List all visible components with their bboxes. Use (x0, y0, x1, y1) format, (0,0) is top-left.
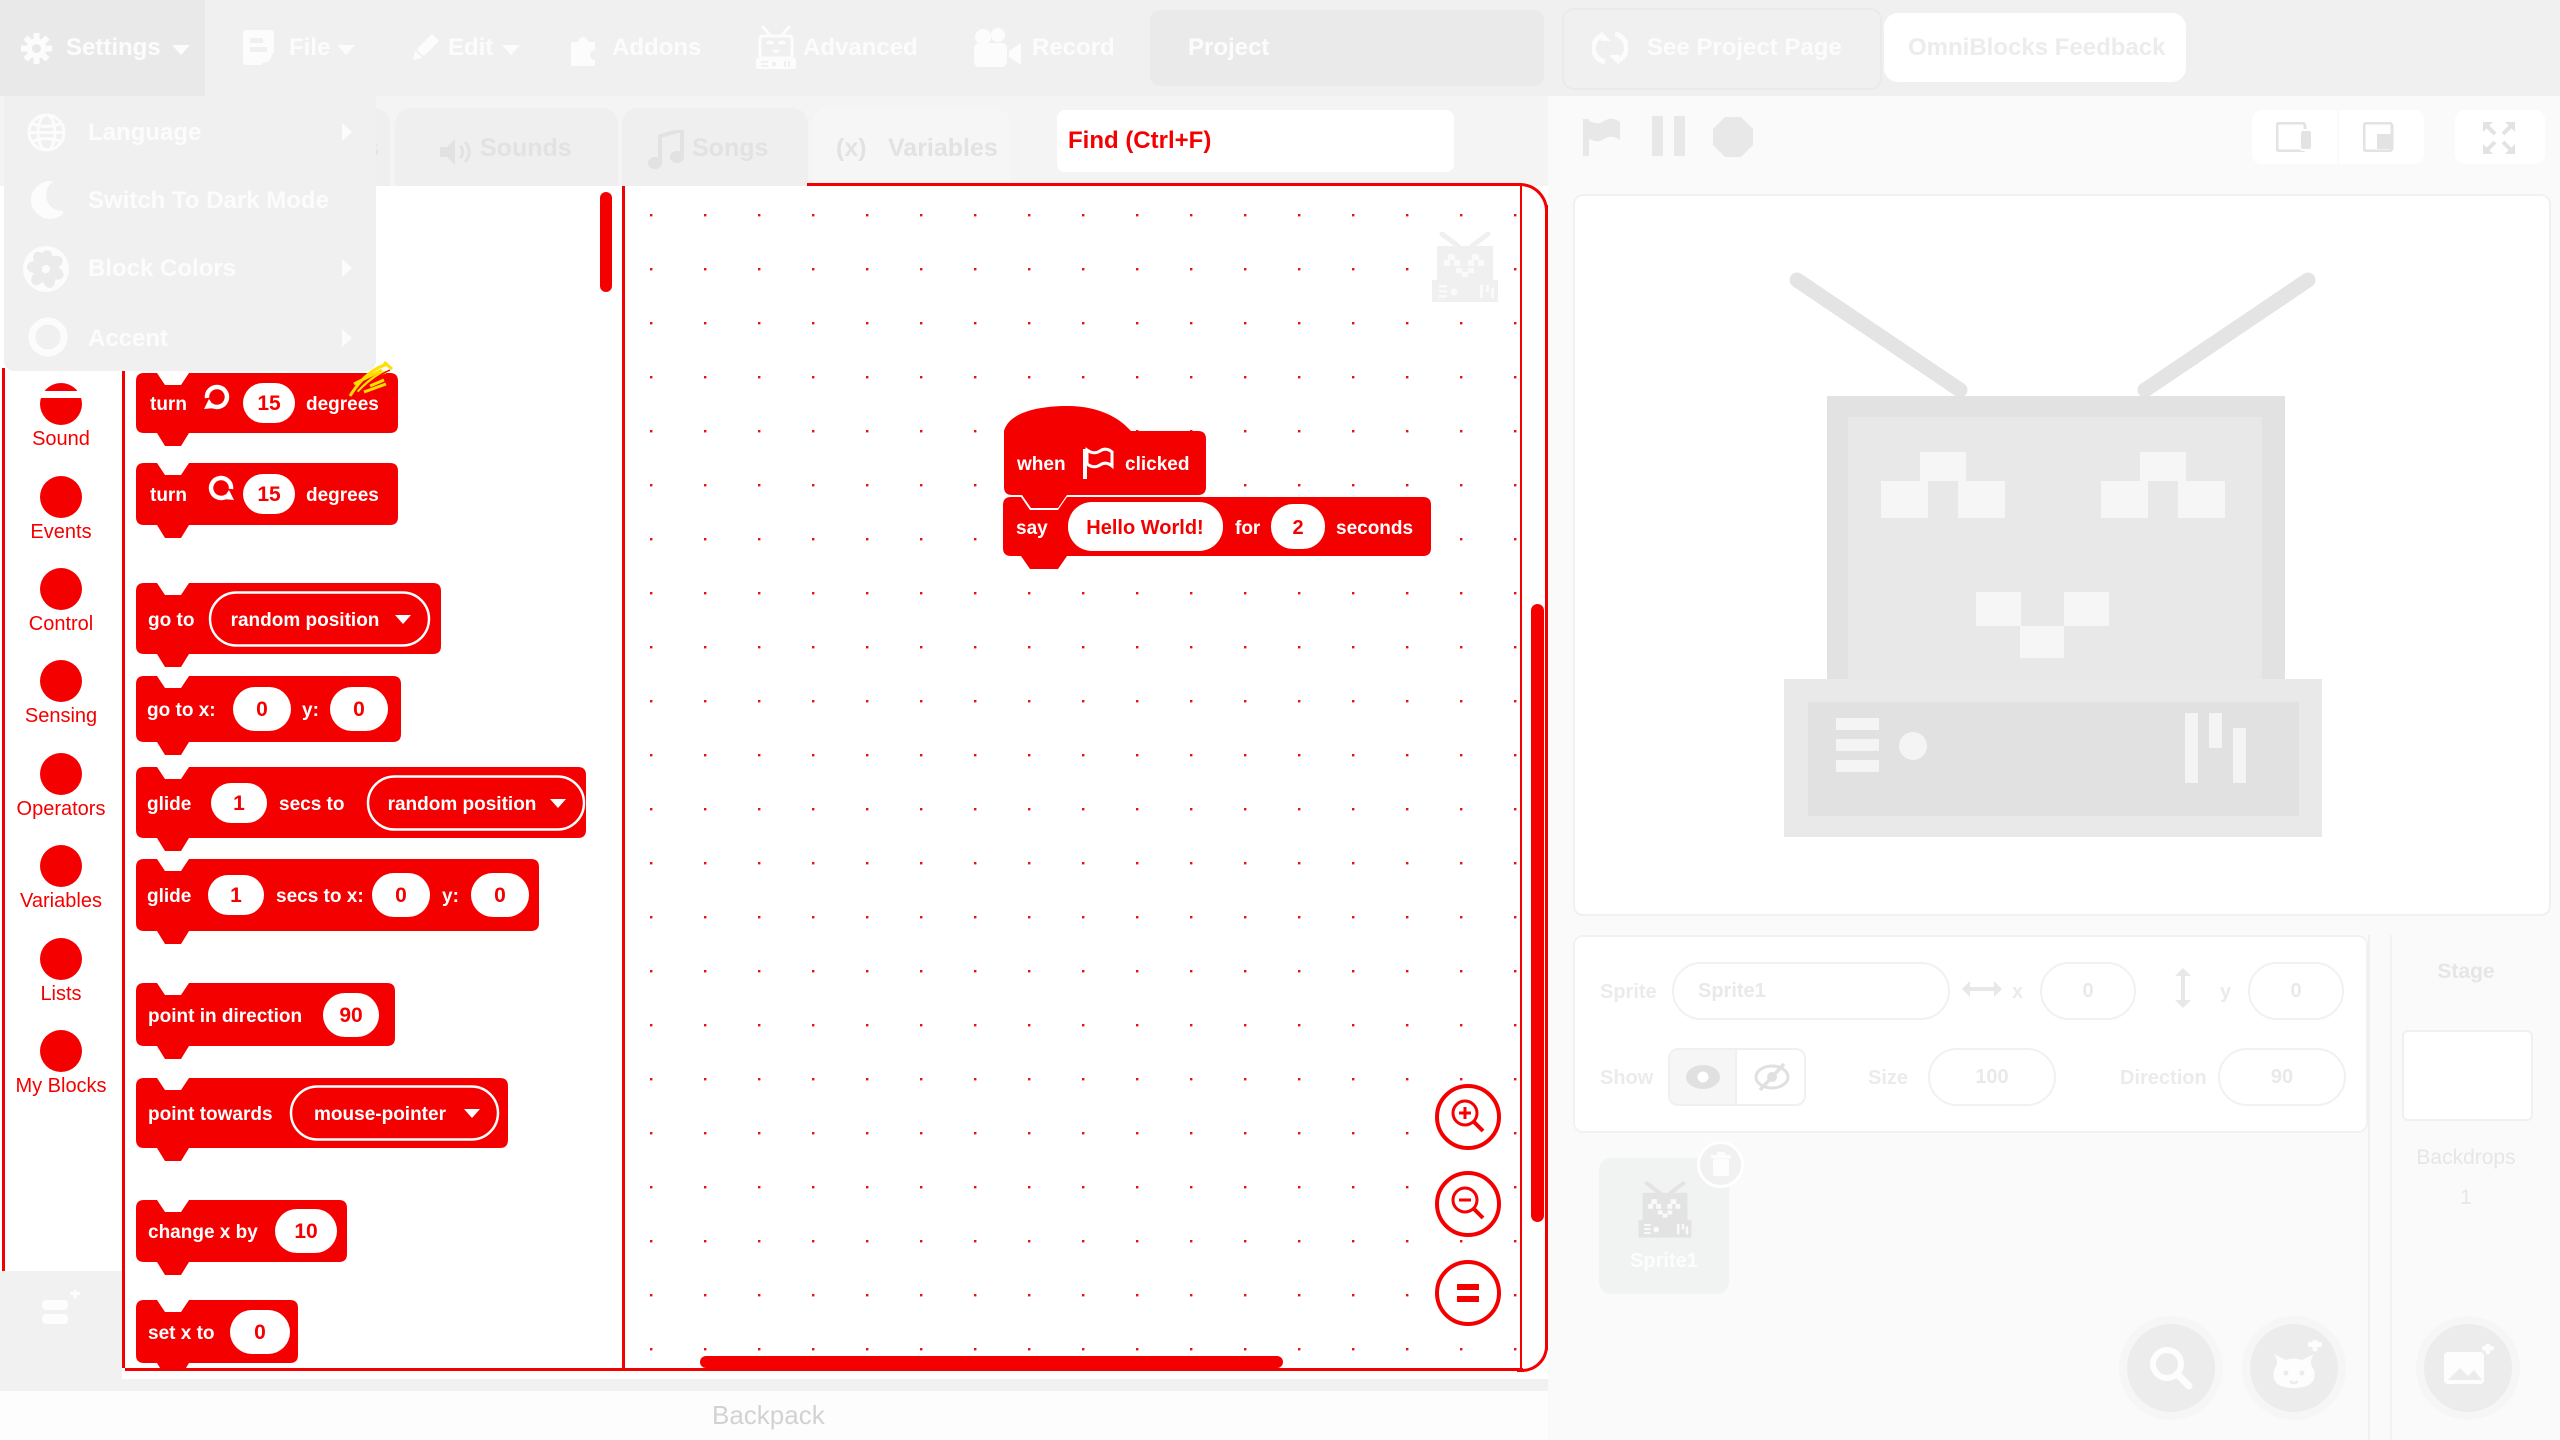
svg-text:0: 0 (353, 698, 365, 721)
svg-text:secs to x:: secs to x: (276, 886, 364, 907)
svg-text:point towards: point towards (148, 1104, 273, 1125)
svg-text:0: 0 (256, 698, 268, 721)
svg-text:random position: random position (231, 610, 380, 631)
svg-text:point in direction: point in direction (148, 1006, 302, 1027)
svg-text:degrees: degrees (306, 485, 379, 506)
svg-text:go to: go to (148, 610, 194, 631)
svg-text:turn: turn (150, 394, 187, 415)
svg-text:1: 1 (233, 792, 245, 815)
svg-text:0: 0 (494, 884, 506, 907)
svg-text:clicked: clicked (1125, 454, 1189, 475)
svg-text:go to x:: go to x: (147, 700, 216, 721)
svg-text:say: say (1016, 518, 1048, 539)
svg-text:when: when (1016, 454, 1066, 475)
svg-text:turn: turn (150, 485, 187, 506)
svg-text:90: 90 (339, 1004, 362, 1027)
svg-text:glide: glide (147, 886, 191, 907)
svg-text:set x to: set x to (148, 1323, 215, 1344)
svg-text:2: 2 (1292, 517, 1303, 539)
svg-text:1: 1 (230, 884, 242, 907)
svg-text:seconds: seconds (1336, 518, 1413, 539)
svg-text:0: 0 (395, 884, 407, 907)
svg-text:15: 15 (257, 392, 281, 415)
svg-text:y:: y: (302, 700, 319, 721)
svg-text:random position: random position (388, 794, 537, 815)
svg-text:mouse-pointer: mouse-pointer (314, 1104, 447, 1125)
svg-text:15: 15 (257, 483, 281, 506)
svg-text:0: 0 (254, 1321, 266, 1344)
svg-text:10: 10 (294, 1220, 317, 1243)
svg-text:Hello World!: Hello World! (1086, 517, 1203, 539)
svg-text:secs to: secs to (279, 794, 344, 815)
svg-text:y:: y: (442, 886, 459, 907)
svg-text:change x by: change x by (148, 1222, 258, 1243)
svg-text:for: for (1235, 518, 1261, 539)
svg-text:glide: glide (147, 794, 191, 815)
